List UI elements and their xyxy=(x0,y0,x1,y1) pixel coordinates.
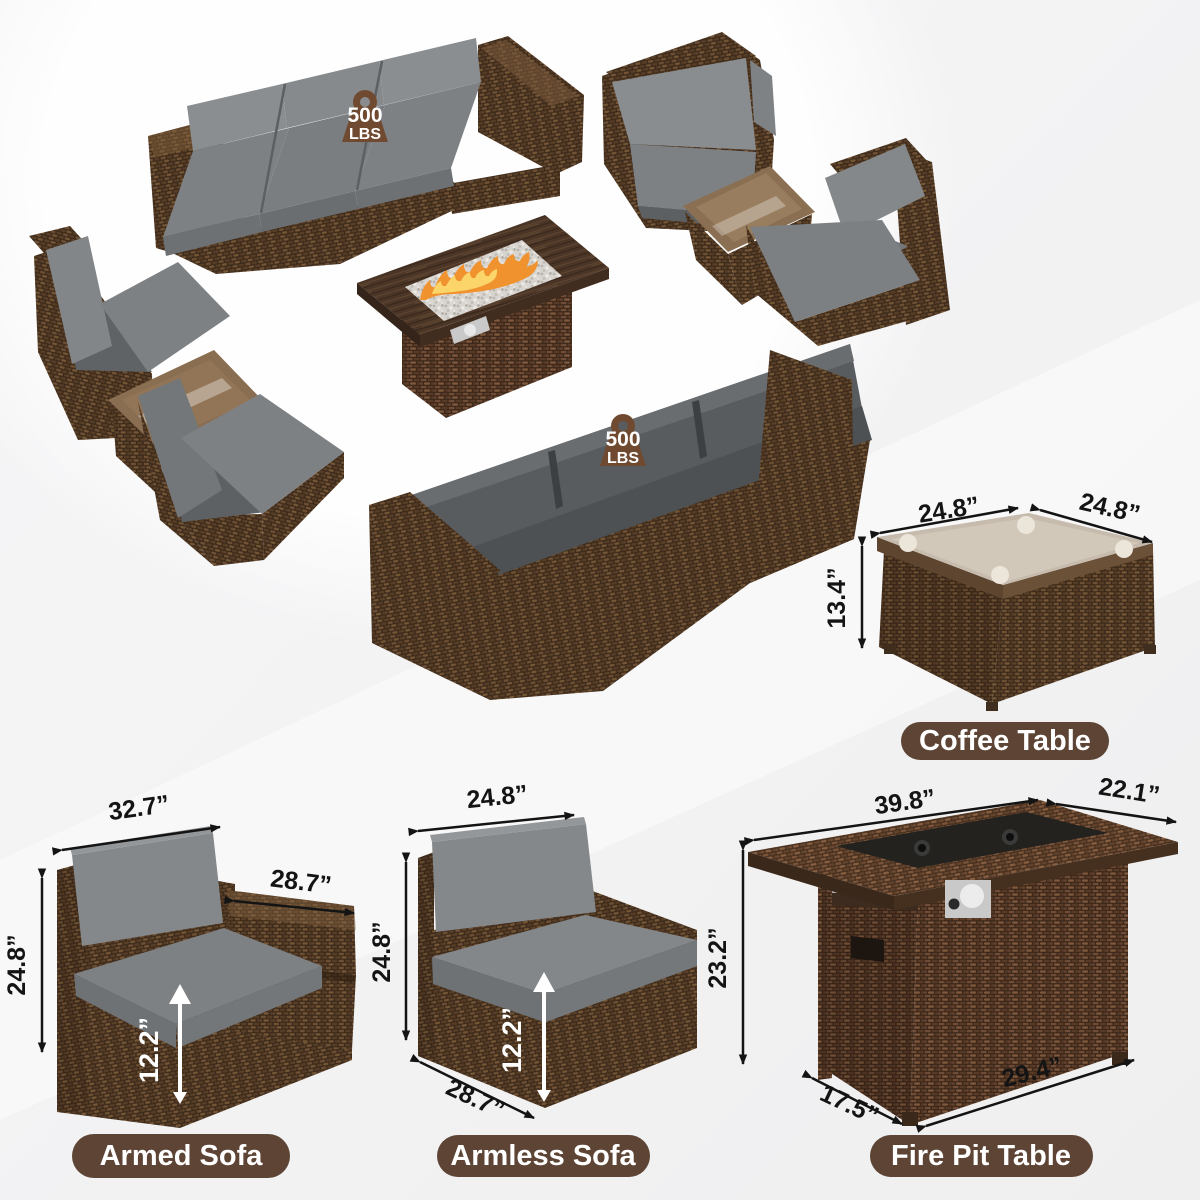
svg-text:24.8”: 24.8” xyxy=(368,921,396,982)
svg-text:500: 500 xyxy=(605,428,640,451)
svg-text:Fire Pit Table: Fire Pit Table xyxy=(891,1140,1071,1172)
svg-text:12.2”: 12.2” xyxy=(134,1017,164,1083)
svg-text:Coffee Table: Coffee Table xyxy=(919,725,1091,757)
svg-text:12.2”: 12.2” xyxy=(497,1007,527,1073)
svg-text:LBS: LBS xyxy=(349,126,381,143)
svg-text:13.4”: 13.4” xyxy=(823,567,851,628)
svg-text:LBS: LBS xyxy=(607,450,639,467)
svg-text:23.2”: 23.2” xyxy=(704,927,732,988)
svg-text:Armed Sofa: Armed Sofa xyxy=(100,1140,264,1172)
svg-text:Armless Sofa: Armless Sofa xyxy=(450,1140,636,1172)
svg-text:24.8”: 24.8” xyxy=(3,934,31,995)
svg-text:500: 500 xyxy=(347,104,382,127)
